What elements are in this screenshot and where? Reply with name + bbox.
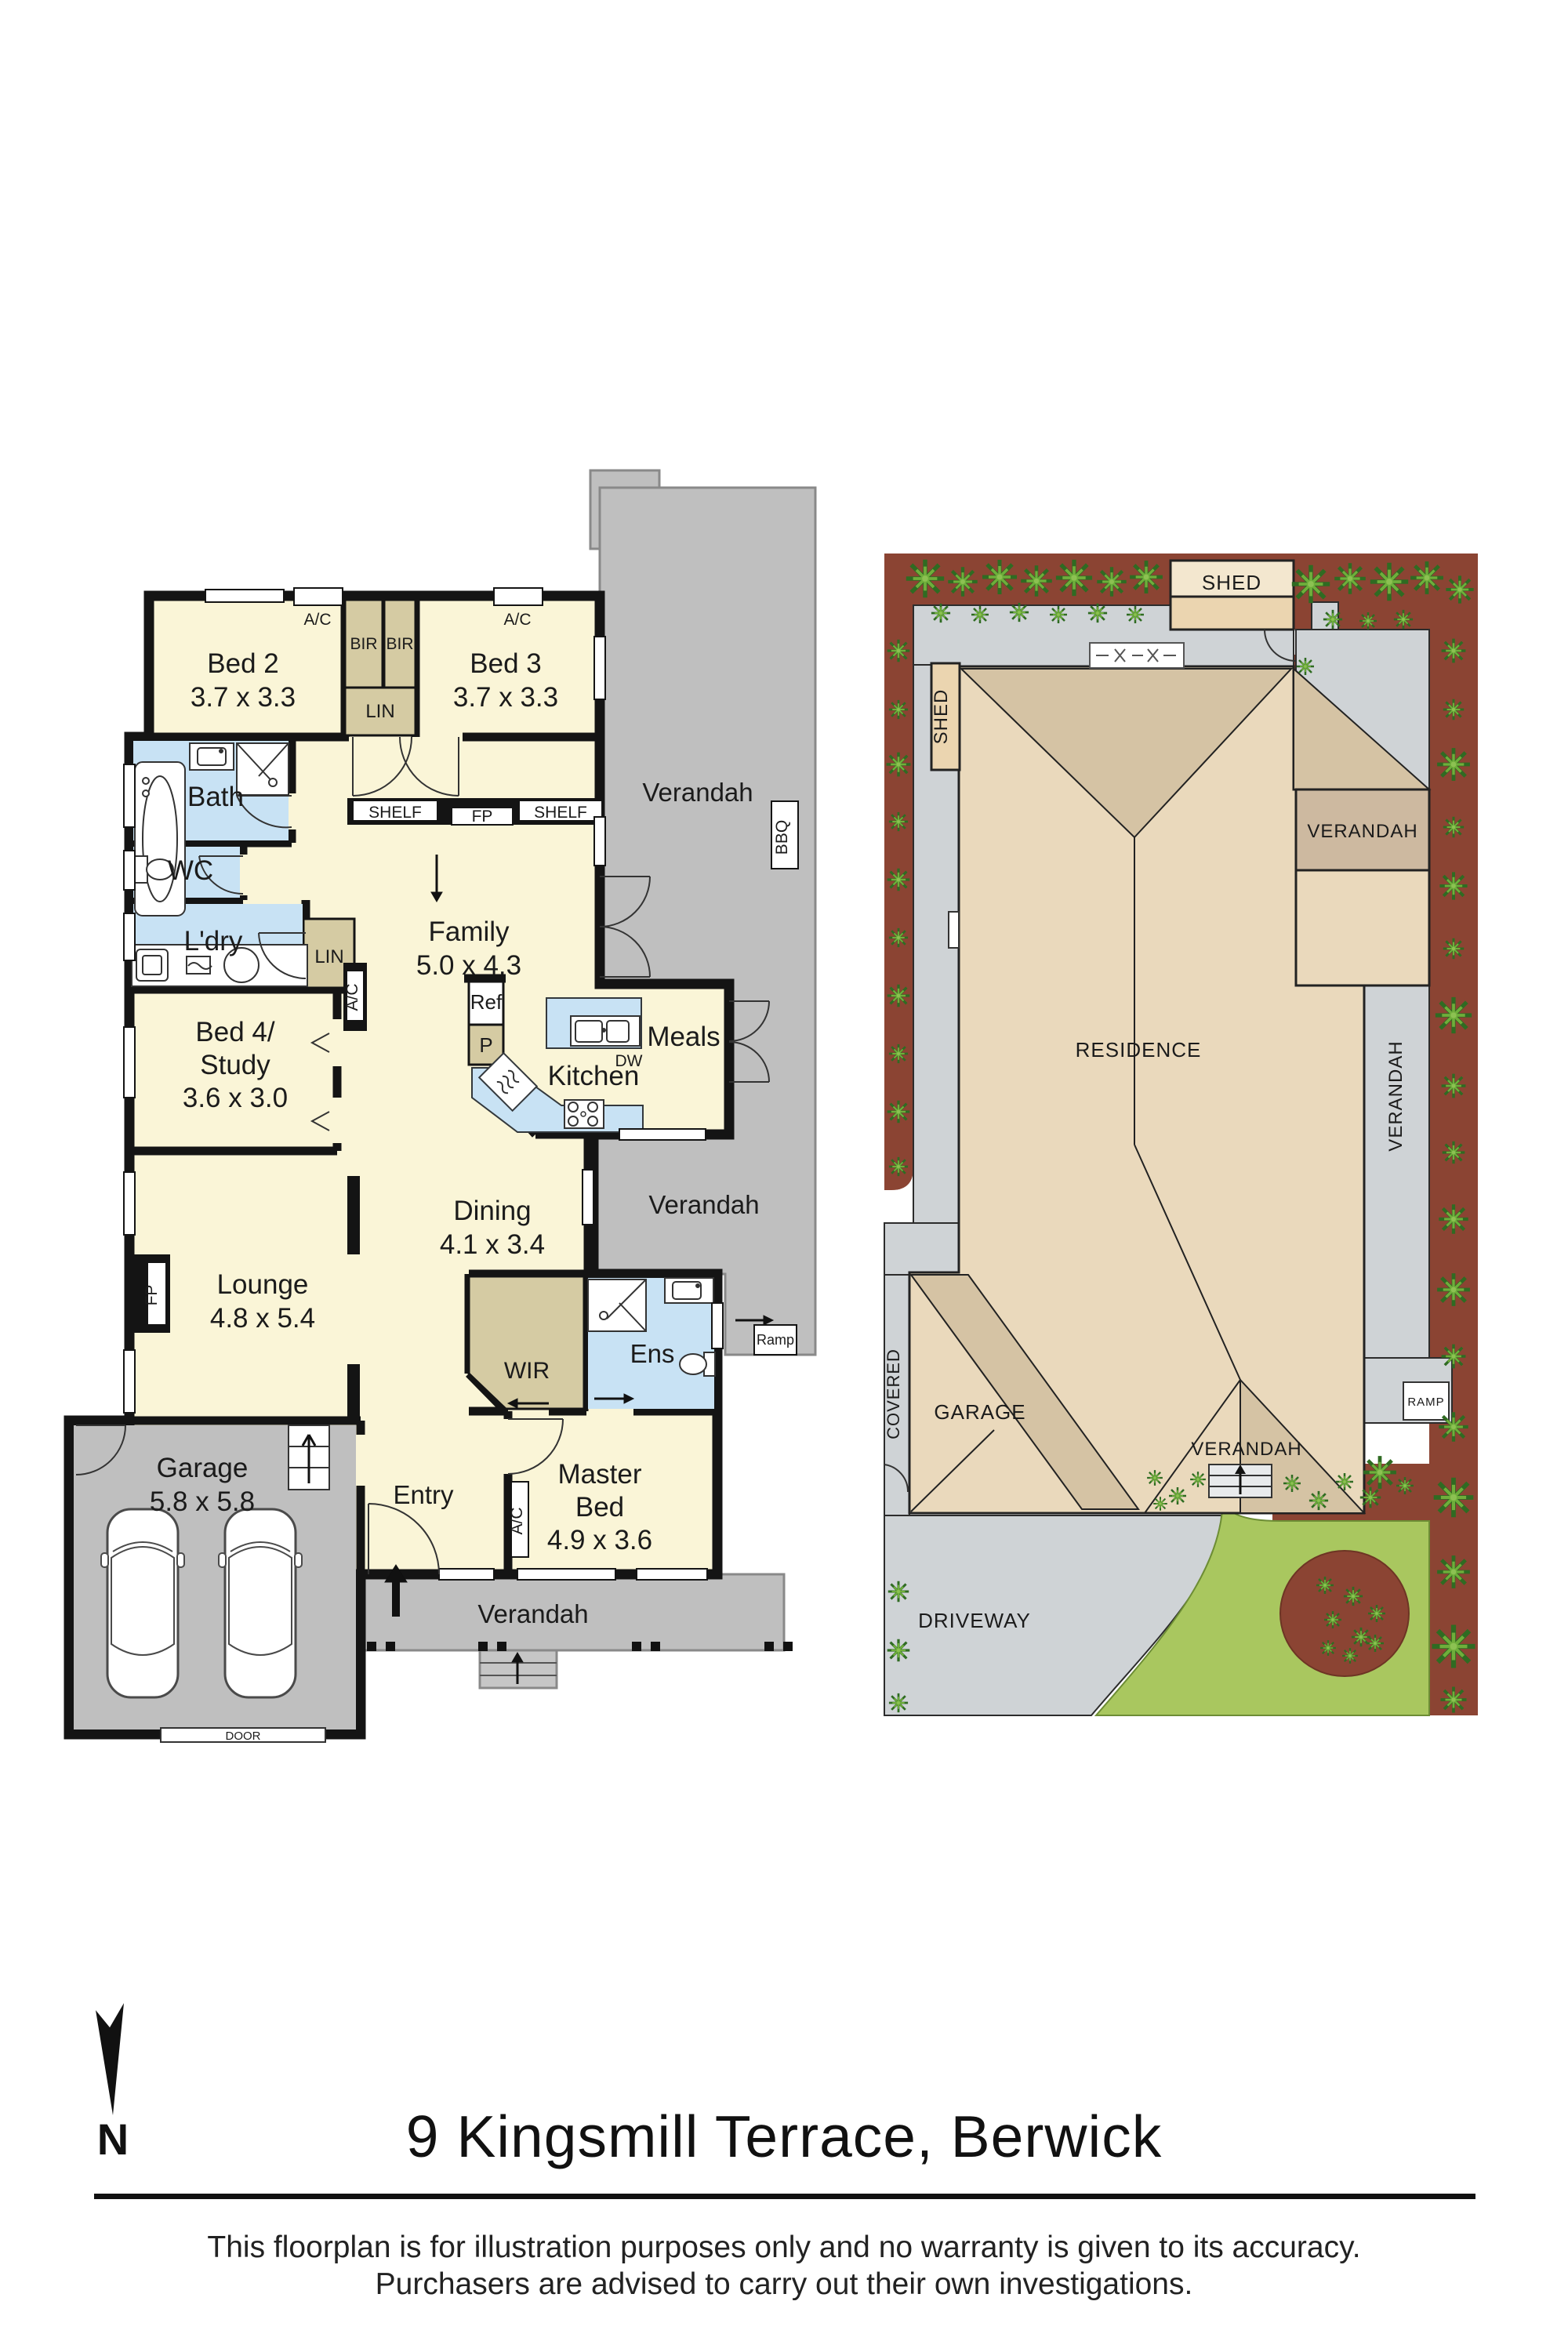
lawn-garden-bed — [1280, 1551, 1409, 1676]
ac-label: A/C — [503, 611, 531, 629]
palm-plant-icon — [1010, 603, 1029, 622]
dw-label: DW — [615, 1052, 643, 1070]
palm-plant-icon — [1316, 1577, 1334, 1594]
ac-unit — [294, 588, 343, 605]
palm-plant-icon — [1396, 1477, 1414, 1494]
ens-toilet-icon — [680, 1352, 715, 1376]
page-title: 9 Kingsmill Terrace, Berwick — [0, 2103, 1568, 2170]
palm-plant-icon — [1370, 563, 1408, 601]
palm-plant-icon — [1297, 658, 1314, 675]
palm-plant-icon — [1434, 1478, 1474, 1518]
palm-plant-icon — [1446, 575, 1473, 603]
palm-plant-icon — [931, 604, 950, 622]
palm-plant-icon — [1342, 1648, 1358, 1664]
wc-label: WC — [168, 855, 213, 886]
bed2-label: Bed 2 — [207, 648, 278, 679]
driveway-label: DRIVEWAY — [918, 1609, 1031, 1632]
palm-plant-icon — [1323, 610, 1342, 629]
site-ramp-label: RAMP — [1407, 1396, 1444, 1409]
bbq-label: BBQ — [773, 820, 791, 855]
palm-plant-icon — [1441, 1687, 1467, 1713]
verandah-bottom-label: Verandah — [477, 1599, 588, 1628]
palm-plant-icon — [887, 1101, 910, 1123]
master-dims: 4.9 x 3.6 — [547, 1525, 652, 1555]
entry-label: Entry — [393, 1480, 454, 1509]
palm-plant-icon — [1363, 1456, 1396, 1489]
palm-plant-icon — [887, 1639, 910, 1662]
palm-plant-icon — [1442, 639, 1466, 663]
bed4-label1: Bed 4/ — [195, 1017, 274, 1047]
palm-plant-icon — [1127, 606, 1144, 623]
palm-plant-icon — [1367, 1635, 1384, 1652]
palm-plant-icon — [1439, 872, 1467, 899]
shelf-label: SHELF — [368, 804, 422, 822]
palm-plant-icon — [1359, 612, 1377, 630]
verandah-right-label: VERANDAH — [1307, 821, 1417, 842]
palm-plant-icon — [1439, 1412, 1468, 1441]
bath-label: Bath — [187, 782, 244, 812]
palm-plant-icon — [1292, 565, 1330, 603]
meals-label: Meals — [647, 1022, 720, 1052]
site-window — [949, 912, 959, 948]
palm-plant-icon — [889, 928, 908, 947]
palm-plant-icon — [1088, 604, 1107, 622]
floor-plan: Bed 2 3.7 x 3.3 Bed 3 3.7 x 3.3 Verandah… — [47, 463, 831, 1764]
palm-plant-icon — [889, 1693, 908, 1712]
palm-plant-icon — [1336, 1473, 1353, 1490]
palm-plant-icon — [889, 700, 908, 719]
palm-plant-icon — [1360, 1487, 1381, 1508]
site-garage-label: GARAGE — [934, 1400, 1025, 1424]
kitchen-sink-icon — [571, 1016, 640, 1046]
cooktop-icon — [564, 1100, 604, 1128]
palm-plant-icon — [889, 812, 908, 831]
palm-plant-icon — [1169, 1487, 1186, 1504]
family-label: Family — [428, 916, 510, 947]
residence-label: RESIDENCE — [1076, 1038, 1202, 1062]
car-icon — [101, 1509, 184, 1697]
palm-plant-icon — [1190, 1472, 1206, 1487]
bed4-dims: 3.6 x 3.0 — [183, 1083, 288, 1113]
fp-label: FP — [143, 1285, 161, 1306]
master-label1: Master — [558, 1459, 642, 1490]
pantry-label: P — [479, 1033, 492, 1057]
disclaimer-line2: Purchasers are advised to carry out thei… — [0, 2267, 1568, 2302]
lin-label: LIN — [314, 946, 343, 967]
verandah-mid-label: Verandah — [648, 1190, 759, 1219]
palm-plant-icon — [1436, 997, 1472, 1033]
palm-plant-icon — [1443, 1142, 1465, 1164]
palm-plant-icon — [1320, 1640, 1336, 1656]
palm-plant-icon — [1443, 817, 1464, 837]
lounge-dims: 4.8 x 5.4 — [210, 1303, 315, 1334]
door-label: DOOR — [226, 1730, 261, 1743]
palm-plant-icon — [1442, 1345, 1466, 1369]
palm-plant-icon — [1283, 1475, 1301, 1492]
palm-plant-icon — [1368, 1605, 1385, 1622]
divider-rule — [94, 2194, 1475, 2199]
palm-plant-icon — [906, 560, 944, 597]
palm-plant-icon — [887, 869, 910, 891]
covered-label: COVERED — [884, 1348, 903, 1439]
palm-plant-icon — [1153, 1497, 1167, 1511]
ens-label: Ens — [630, 1339, 675, 1368]
garage-stairs — [289, 1425, 329, 1490]
bed3-dims: 3.7 x 3.3 — [453, 682, 558, 713]
bir-label: BIR — [350, 635, 377, 653]
ac-label: A/C — [343, 983, 361, 1011]
palm-plant-icon — [889, 1044, 908, 1063]
palm-plant-icon — [887, 985, 910, 1007]
palm-plant-icon — [1437, 1555, 1470, 1588]
verandah-bottom-site-label: VERANDAH — [1191, 1439, 1301, 1460]
family-dims: 5.0 x 4.3 — [416, 950, 521, 981]
disclaimer-line1: This floorplan is for illustration purpo… — [0, 2230, 1568, 2265]
palm-plant-icon — [1394, 610, 1413, 629]
site-steps — [1209, 1465, 1272, 1497]
ac-label: A/C — [508, 1507, 526, 1534]
shelf-label: SHELF — [534, 804, 587, 822]
bed4-label2: Study — [200, 1050, 270, 1080]
shed-left-label: SHED — [931, 689, 952, 745]
bir-label: BIR — [386, 635, 413, 653]
palm-plant-icon — [1050, 606, 1067, 623]
verandah-top-label: Verandah — [642, 778, 753, 807]
ac-label: A/C — [303, 611, 331, 629]
palm-plant-icon — [1324, 1611, 1341, 1628]
palm-plant-icon — [1056, 560, 1092, 596]
palm-plant-icon — [982, 560, 1017, 594]
palm-plant-icon — [1410, 561, 1443, 594]
verandah-vertical-label: VERANDAH — [1385, 1040, 1406, 1151]
palm-plant-icon — [1021, 565, 1052, 597]
palm-plant-icon — [887, 640, 910, 662]
north-arrow-icon — [93, 2001, 127, 2117]
car-icon — [219, 1509, 302, 1697]
palm-plant-icon — [1437, 1273, 1470, 1306]
palm-plant-icon — [971, 606, 989, 623]
master-label2: Bed — [575, 1492, 624, 1523]
palm-plant-icon — [887, 753, 911, 777]
palm-plant-icon — [1432, 1625, 1475, 1668]
clothesline-icon — [1090, 643, 1184, 668]
ac-unit — [494, 588, 543, 605]
palm-plant-icon — [1130, 561, 1163, 593]
palm-plant-icon — [1097, 567, 1126, 596]
palm-plant-icon — [1147, 1470, 1163, 1486]
palm-plant-icon — [1344, 1587, 1363, 1606]
bed2-dims: 3.7 x 3.3 — [191, 682, 296, 713]
dining-dims: 4.1 x 3.4 — [440, 1229, 545, 1260]
palm-plant-icon — [889, 1157, 908, 1176]
garage-label: Garage — [157, 1453, 249, 1483]
ref-label: Ref — [470, 990, 503, 1014]
site-plan: SHED SHED RESIDENCE VERANDAH VERANDAH CO… — [882, 545, 1482, 1721]
laundry-label: L'dry — [184, 926, 243, 956]
palm-plant-icon — [1442, 1074, 1466, 1098]
palm-plant-icon — [1439, 1204, 1468, 1233]
ramp-label: Ramp — [757, 1332, 794, 1348]
lin-label: LIN — [365, 701, 394, 722]
wir-label: WIR — [504, 1358, 550, 1384]
palm-plant-icon — [1443, 938, 1464, 959]
palm-plant-icon — [888, 1581, 909, 1602]
fp-label: FP — [472, 808, 493, 826]
palm-plant-icon — [1334, 563, 1366, 594]
lounge-label: Lounge — [217, 1269, 309, 1300]
palm-plant-icon — [1437, 748, 1470, 781]
palm-plant-icon — [1309, 1491, 1328, 1510]
palm-plant-icon — [948, 567, 977, 596]
shed-top-label: SHED — [1202, 571, 1261, 594]
garage-dims: 5.8 x 5.8 — [150, 1486, 255, 1517]
palm-plant-icon — [1443, 699, 1464, 720]
bed3-label: Bed 3 — [470, 648, 541, 679]
dining-label: Dining — [453, 1196, 531, 1226]
